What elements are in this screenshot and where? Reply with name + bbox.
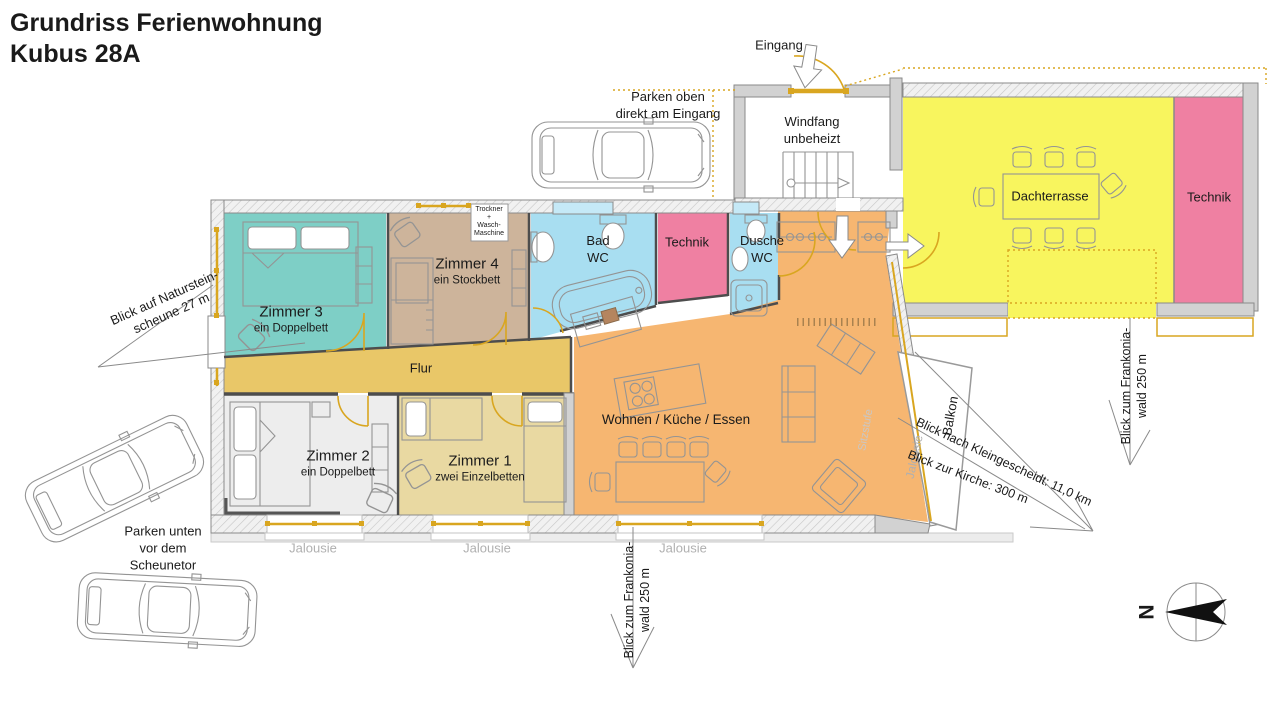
label-zimmer4: Zimmer 4 [435,254,498,274]
page-title: Grundriss Ferienwohnung Kubus 28A [10,8,323,71]
label-zimmer3-sub: ein Doppelbett [254,322,328,337]
label-parken-oben: Parken oben direkt am Eingang [616,89,721,123]
label-zimmer3: Zimmer 3 [259,302,322,322]
glass-strip [733,202,759,214]
label-zimmer1: Zimmer 1 [448,451,511,471]
label-bad-wc: Bad WC [586,233,609,267]
label-windfang: Windfang unbeheizt [784,114,840,148]
label-zimmer4-sub: ein Stockbett [434,274,500,289]
dachterrasse-block [893,83,1258,336]
label-north: N [1133,604,1160,619]
label-technik-dach: Technik [1187,190,1231,207]
label-technik: Technik [665,235,709,252]
glass-strip [553,202,613,214]
label-frankonia-south: Blick zum Frankonia- wald 250 m [621,542,654,659]
floor-plan-page: Grundriss Ferienwohnung Kubus 28A Eingan… [0,0,1280,720]
label-wohnen: Wohnen / Küche / Essen [602,411,750,429]
label-zimmer2-sub: ein Doppelbett [301,466,375,481]
terrace-step [1157,318,1253,336]
label-trockner: Trockner + Wasch- Maschine [474,206,504,238]
label-jalousie-2: Jalousie [463,541,511,558]
label-eingang: Eingang [755,38,803,55]
room-technik [658,213,727,303]
label-zimmer1-sub: zwei Einzelbetten [435,471,525,486]
room-bad-wc [531,213,655,340]
label-dusche-wc: Dusche WC [740,233,784,267]
label-jalousie-1: Jalousie [289,541,337,558]
compass-icon [1165,583,1227,641]
label-frankonia-east: Blick zum Frankonia- wald 250 m [1118,328,1151,445]
label-parken-unten: Parken unten vor dem Scheunetor [124,524,201,575]
label-jalousie-3: Jalousie [659,541,707,558]
label-dachterrasse: Dachterrasse [1011,189,1088,206]
label-flur: Flur [410,361,432,378]
label-zimmer2: Zimmer 2 [306,446,369,466]
